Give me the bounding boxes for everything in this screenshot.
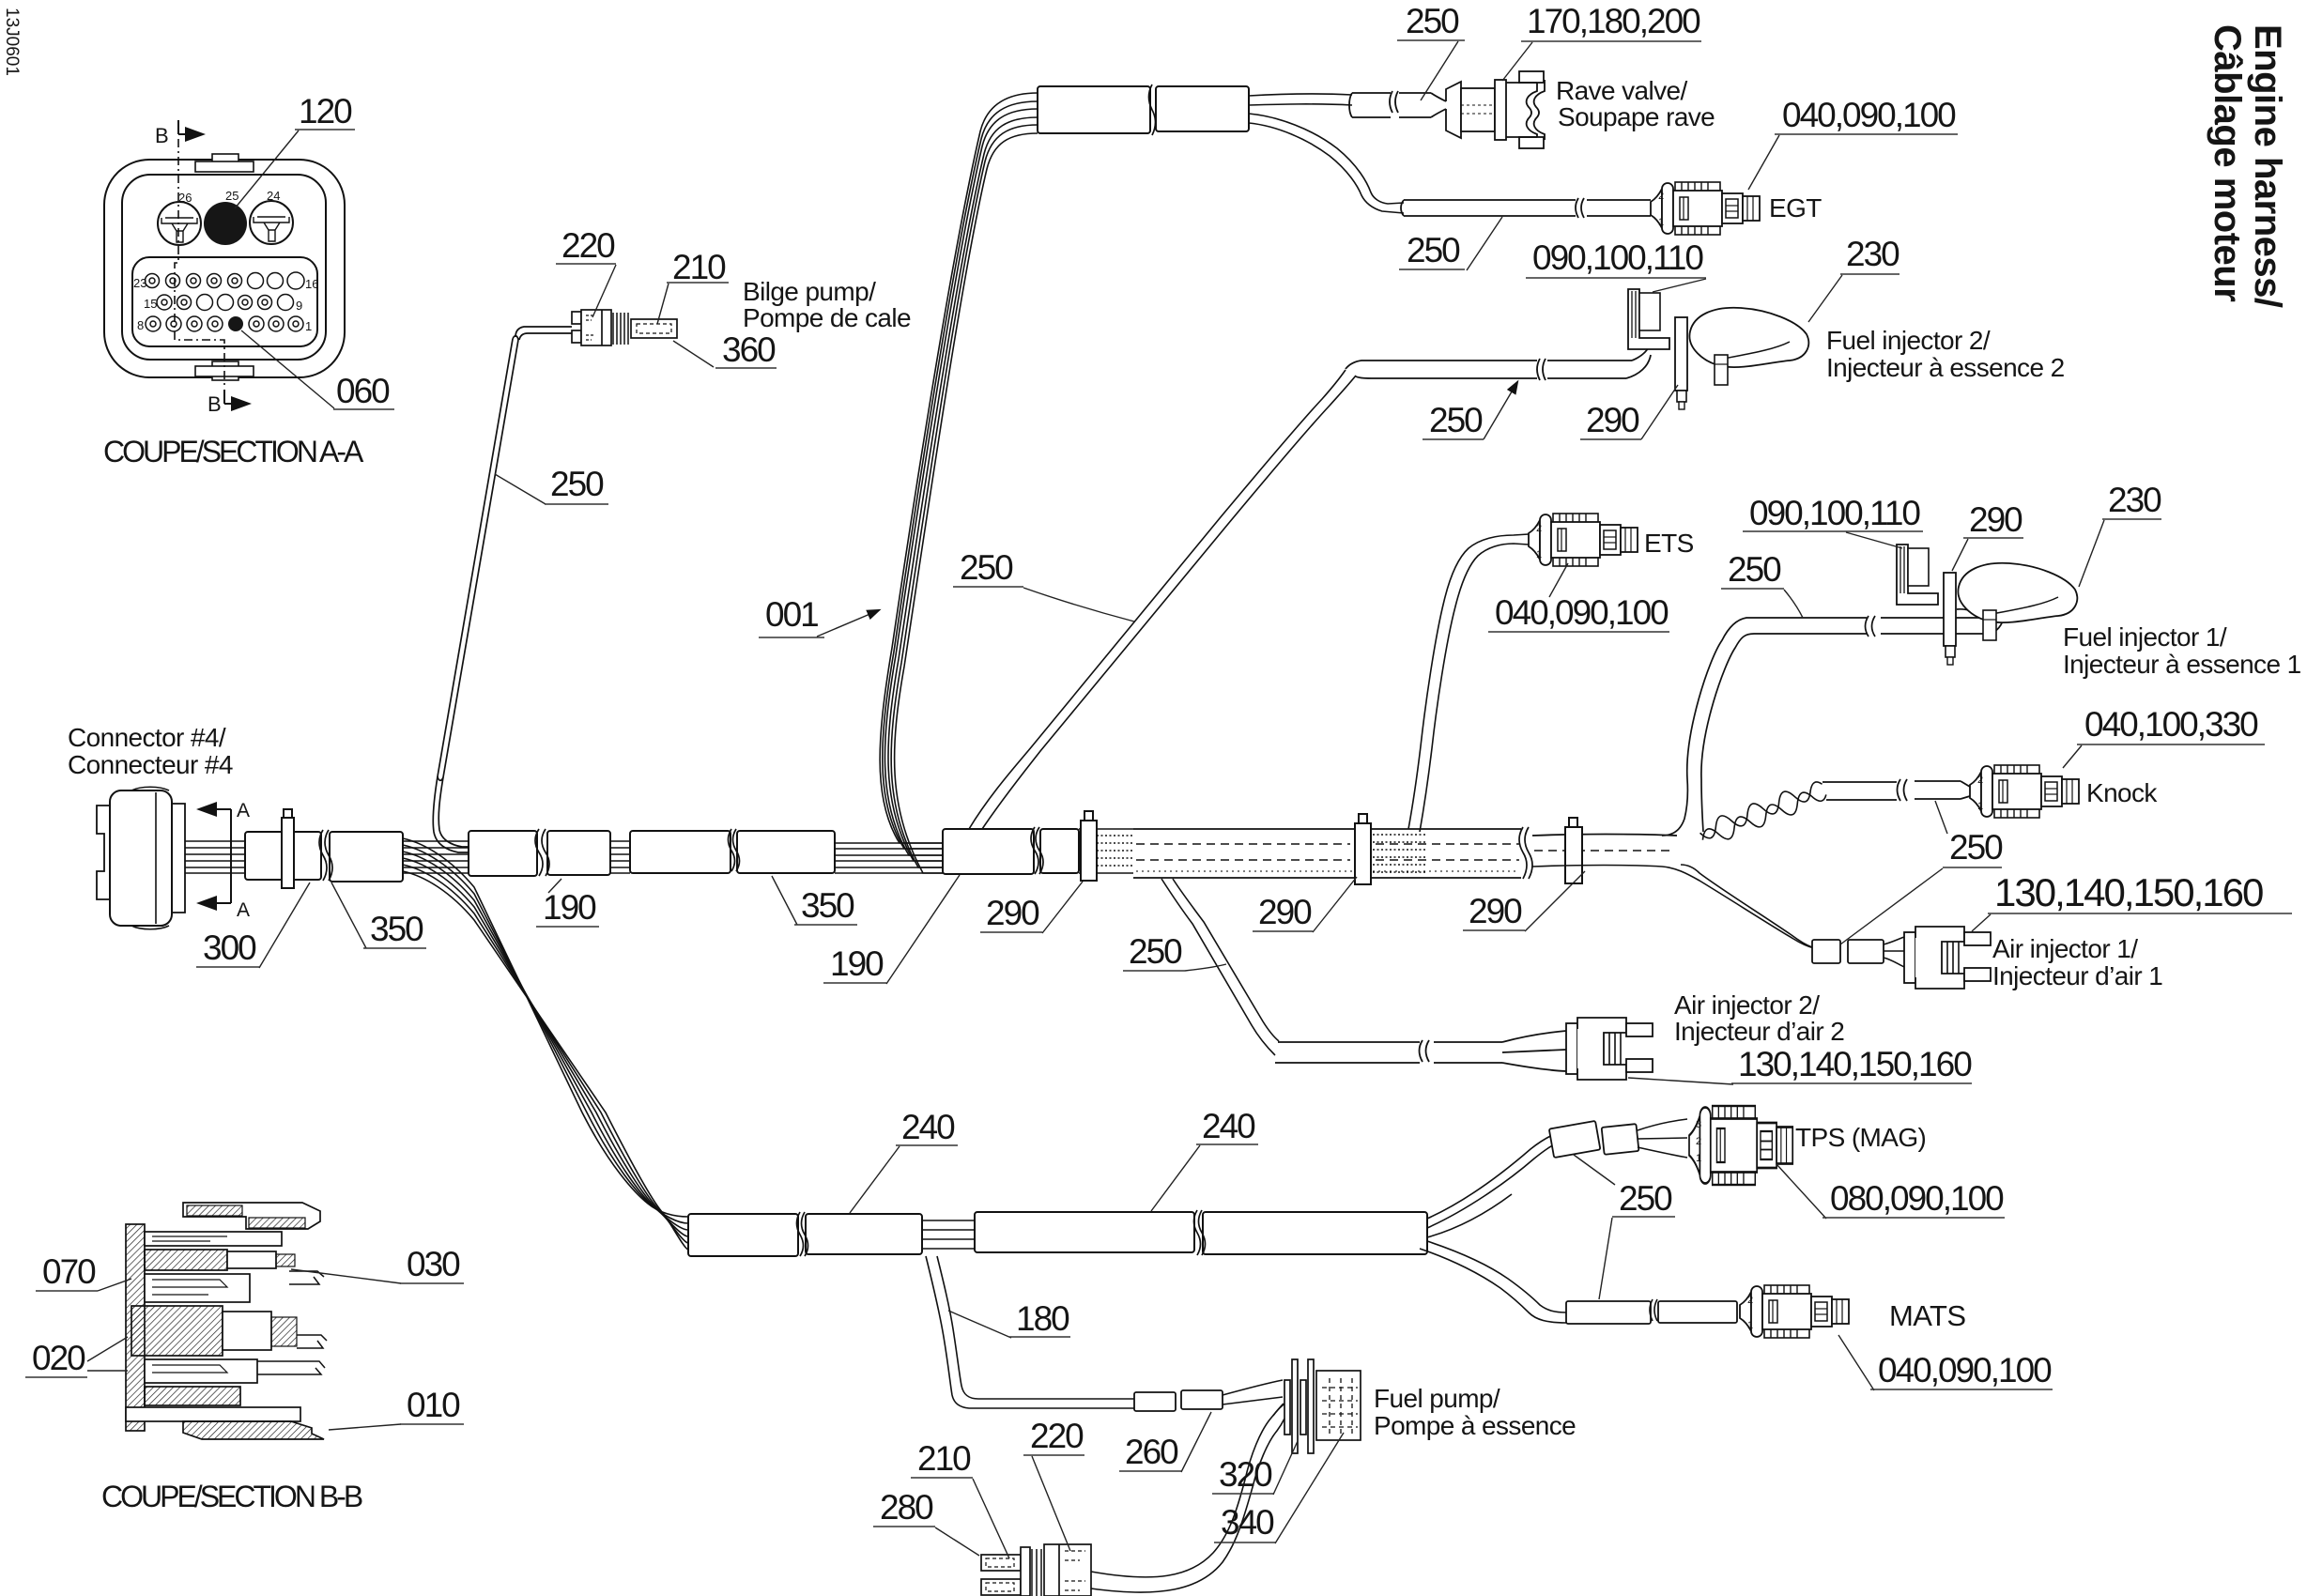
- svg-text:Air injector 2/: Air injector 2/: [1674, 990, 1820, 1020]
- svg-text:9: 9: [296, 299, 302, 313]
- svg-text:250: 250: [1129, 932, 1182, 971]
- svg-text:Bilge pump/: Bilge pump/: [743, 277, 876, 306]
- svg-text:250: 250: [1728, 550, 1781, 589]
- svg-text:Fuel injector 1/: Fuel injector 1/: [2063, 622, 2227, 652]
- svg-text:1: 1: [305, 319, 312, 333]
- svg-text:001: 001: [765, 595, 818, 634]
- svg-text:A: A: [237, 899, 250, 921]
- svg-text:Câblage moteur: Câblage moteur: [2207, 24, 2248, 301]
- svg-text:8: 8: [137, 318, 144, 332]
- svg-text:Pompe de cale: Pompe de cale: [743, 303, 911, 332]
- svg-text:2: 2: [1658, 191, 1664, 202]
- svg-text:020: 020: [32, 1339, 85, 1377]
- svg-text:A: A: [237, 800, 250, 821]
- svg-text:060: 060: [336, 372, 390, 410]
- svg-text:2: 2: [1536, 523, 1542, 534]
- svg-text:Injecteur à essence 2: Injecteur à essence 2: [1826, 353, 2065, 382]
- svg-text:ETS: ETS: [1644, 529, 1694, 558]
- svg-text:250: 250: [1619, 1179, 1672, 1218]
- svg-text:040,090,100: 040,090,100: [1495, 593, 1669, 632]
- svg-text:290: 290: [1469, 892, 1522, 930]
- svg-text:COUPE/SECTION A-A: COUPE/SECTION A-A: [103, 435, 364, 468]
- svg-text:TPS (MAG): TPS (MAG): [1795, 1123, 1926, 1152]
- svg-text:2: 2: [1747, 1295, 1753, 1306]
- svg-text:1: 1: [1977, 801, 1983, 812]
- svg-text:010: 010: [407, 1386, 460, 1424]
- svg-text:Air injector 1/: Air injector 1/: [1992, 934, 2138, 963]
- svg-text:290: 290: [1258, 893, 1312, 931]
- svg-text:COUPE/SECTION B-B: COUPE/SECTION B-B: [101, 1480, 362, 1513]
- svg-text:B: B: [208, 392, 221, 416]
- svg-text:250: 250: [1406, 2, 1459, 40]
- svg-text:250: 250: [1949, 828, 2003, 867]
- svg-text:030: 030: [407, 1245, 460, 1283]
- svg-text:B: B: [155, 124, 168, 147]
- svg-text:240: 240: [1202, 1107, 1255, 1145]
- svg-text:340: 340: [1221, 1503, 1274, 1542]
- svg-text:130,140,150,160: 130,140,150,160: [1738, 1045, 1972, 1083]
- svg-text:360: 360: [722, 330, 776, 369]
- svg-text:170,180,200: 170,180,200: [1527, 2, 1700, 40]
- svg-text:220: 220: [1030, 1417, 1084, 1455]
- svg-text:130,140,150,160: 130,140,150,160: [1994, 870, 2263, 914]
- svg-text:250: 250: [960, 548, 1013, 587]
- svg-text:350: 350: [801, 886, 854, 925]
- svg-text:190: 190: [830, 944, 884, 983]
- svg-text:290: 290: [986, 894, 1039, 932]
- svg-text:250: 250: [1429, 401, 1483, 439]
- svg-text:Injecteur d’air 1: Injecteur d’air 1: [1992, 961, 2162, 990]
- svg-text:15: 15: [144, 297, 157, 311]
- svg-text:Injecteur à essence 1: Injecteur à essence 1: [2063, 650, 2301, 679]
- svg-text:24: 24: [267, 189, 280, 203]
- svg-text:2: 2: [1977, 775, 1983, 786]
- svg-text:250: 250: [1407, 231, 1460, 269]
- svg-text:2: 2: [1696, 1136, 1701, 1147]
- svg-text:040,090,100: 040,090,100: [1782, 96, 1956, 134]
- svg-text:13J0601: 13J0601: [2, 8, 22, 76]
- svg-text:280: 280: [880, 1488, 933, 1527]
- svg-text:Fuel pump/: Fuel pump/: [1374, 1384, 1500, 1413]
- svg-text:220: 220: [561, 226, 615, 265]
- svg-text:1: 1: [1658, 217, 1664, 228]
- svg-text:290: 290: [1969, 500, 2022, 539]
- svg-text:240: 240: [901, 1108, 955, 1146]
- svg-text:Rave valve/: Rave valve/: [1556, 76, 1688, 105]
- svg-text:070: 070: [42, 1252, 96, 1291]
- svg-text:26: 26: [178, 191, 192, 205]
- svg-text:210: 210: [917, 1439, 971, 1478]
- svg-text:290: 290: [1586, 401, 1639, 439]
- svg-text:300: 300: [203, 928, 256, 967]
- svg-text:180: 180: [1016, 1299, 1069, 1338]
- svg-text:Fuel injector 2/: Fuel injector 2/: [1826, 326, 1991, 355]
- svg-text:3: 3: [1696, 1119, 1701, 1130]
- svg-text:23: 23: [133, 276, 146, 290]
- svg-text:Soupape rave: Soupape rave: [1558, 102, 1715, 131]
- svg-text:25: 25: [225, 189, 238, 203]
- svg-text:1: 1: [1536, 549, 1542, 560]
- svg-text:090,100,110: 090,100,110: [1749, 494, 1920, 532]
- svg-text:040,100,330: 040,100,330: [2084, 705, 2258, 744]
- svg-text:090,100,110: 090,100,110: [1532, 238, 1703, 277]
- svg-text:Engine harness/: Engine harness/: [2247, 24, 2288, 308]
- svg-text:Knock: Knock: [2086, 778, 2158, 807]
- svg-text:230: 230: [1846, 235, 1899, 273]
- svg-text:040,090,100: 040,090,100: [1878, 1351, 2052, 1389]
- svg-text:Connecteur #4: Connecteur #4: [68, 750, 233, 779]
- svg-text:16: 16: [305, 277, 318, 291]
- svg-text:MATS: MATS: [1889, 1299, 1965, 1332]
- svg-text:EGT: EGT: [1769, 193, 1822, 223]
- svg-text:080,090,100: 080,090,100: [1830, 1179, 2004, 1218]
- svg-text:350: 350: [370, 910, 423, 948]
- svg-text:260: 260: [1125, 1433, 1178, 1471]
- svg-text:Pompe à essence: Pompe à essence: [1374, 1411, 1576, 1440]
- svg-text:190: 190: [543, 888, 596, 927]
- svg-text:320: 320: [1219, 1455, 1272, 1494]
- svg-text:230: 230: [2108, 481, 2161, 519]
- svg-text:Connector #4/: Connector #4/: [68, 723, 226, 752]
- svg-text:1: 1: [1747, 1320, 1753, 1331]
- svg-text:Injecteur d’air 2: Injecteur d’air 2: [1674, 1017, 1844, 1046]
- svg-text:250: 250: [550, 465, 604, 503]
- svg-text:120: 120: [299, 92, 352, 130]
- svg-text:1: 1: [1696, 1153, 1701, 1164]
- svg-text:210: 210: [672, 248, 726, 286]
